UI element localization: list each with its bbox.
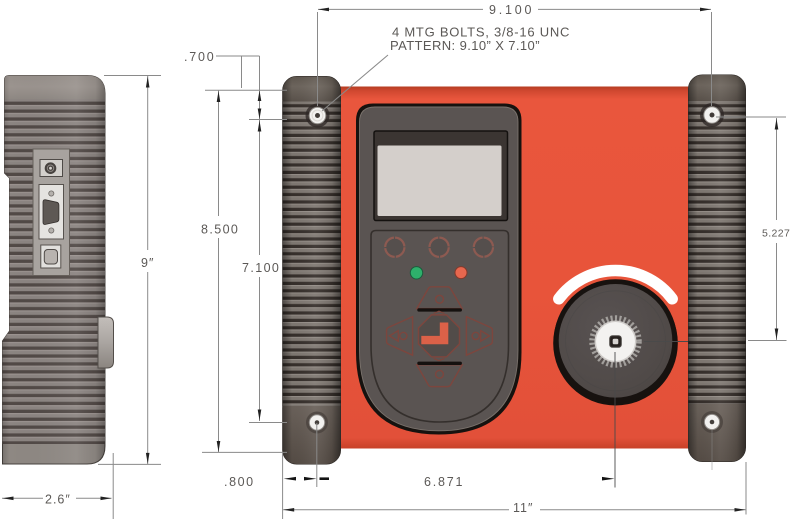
svg-text:7.100: 7.100 (242, 261, 280, 275)
svg-text:.700: .700 (184, 50, 216, 64)
svg-text:11″: 11″ (513, 501, 533, 515)
svg-text:5.227: 5.227 (762, 228, 790, 240)
svg-text:.800: .800 (224, 475, 255, 489)
svg-text:6.871: 6.871 (424, 475, 464, 489)
svg-text:9.100: 9.100 (489, 3, 534, 17)
svg-text:8.500: 8.500 (201, 223, 239, 237)
svg-text:9″: 9″ (141, 256, 154, 270)
svg-text:PATTERN: 9.10” X 7.10”: PATTERN: 9.10” X 7.10” (390, 38, 540, 53)
svg-text:2.6″: 2.6″ (45, 493, 71, 507)
